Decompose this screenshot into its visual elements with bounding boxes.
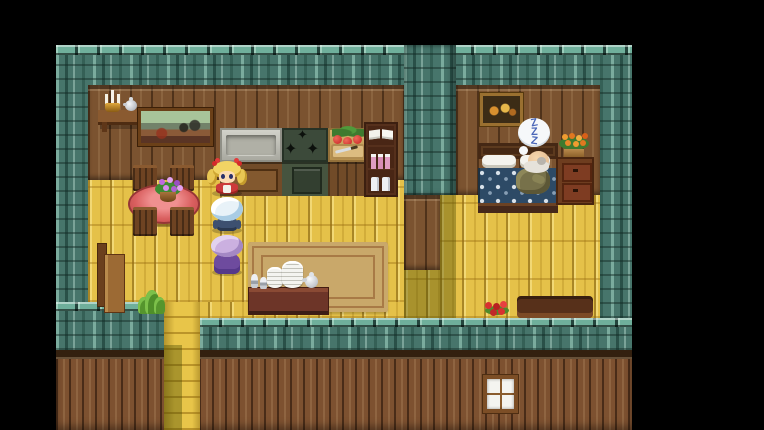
goblet <box>251 274 258 288</box>
orange-flowers <box>562 134 568 140</box>
shelf-bracket <box>102 122 107 132</box>
bubble-body: Z Z Z <box>518 118 550 147</box>
teapot-body <box>125 100 137 111</box>
hair-ornament <box>212 161 217 166</box>
doorstep <box>517 296 593 318</box>
prep-counter[interactable] <box>328 128 368 196</box>
partition-shadow-east <box>440 195 456 318</box>
blue-hair <box>211 197 243 221</box>
radish <box>333 135 342 144</box>
table-teapot <box>303 272 320 288</box>
shelf-cell-top <box>368 126 394 145</box>
drawer-handle <box>573 189 578 192</box>
sleep-bubble: Z Z Z <box>516 118 552 156</box>
window <box>483 375 518 413</box>
pillow <box>482 155 516 168</box>
dining-chair[interactable] <box>133 207 157 236</box>
plate-stack <box>282 261 303 288</box>
bench-seat <box>104 254 125 313</box>
exit-stairs-shadow <box>164 345 182 430</box>
character-heroine[interactable] <box>208 158 246 196</box>
shelf-cell-mid <box>368 147 394 168</box>
dresser[interactable] <box>556 157 594 205</box>
partition-shadow-south <box>404 270 440 318</box>
house-plant <box>138 288 165 315</box>
purple-flowers <box>159 179 165 185</box>
potion-bottle <box>378 154 383 169</box>
plant-tuft <box>154 297 165 314</box>
plate-stack <box>267 267 283 288</box>
heroine-eye <box>221 174 225 179</box>
candelabra-base <box>105 103 120 112</box>
radish <box>353 135 362 144</box>
red-flowers <box>483 300 511 317</box>
old-man-nose <box>537 157 546 165</box>
partition-wall <box>404 195 440 270</box>
dish-table[interactable] <box>248 287 329 315</box>
candelabra <box>103 90 122 112</box>
blue-arm <box>236 220 241 229</box>
oven <box>282 162 328 196</box>
heroine-eye <box>229 174 233 179</box>
sink-basin <box>226 135 276 156</box>
red-blooms <box>485 302 492 309</box>
south-roof-right-cap <box>200 318 632 327</box>
purple-hair <box>211 235 243 257</box>
bench <box>95 243 123 313</box>
character-blue-hair[interactable] <box>208 197 246 234</box>
milk-jar <box>371 177 379 191</box>
hair-ornament <box>237 161 242 166</box>
open-book <box>369 129 380 140</box>
footboard <box>478 203 558 213</box>
prep-cabinet <box>328 162 368 196</box>
potion-bottle <box>371 154 376 169</box>
burner-icon: ✦ <box>306 139 319 159</box>
candle <box>111 90 114 104</box>
burner-icon: ✦ <box>284 139 297 159</box>
bookshelf[interactable] <box>364 122 398 197</box>
exterior-wall <box>56 350 632 430</box>
bubble-tail <box>519 146 528 155</box>
flower-basket <box>153 175 183 203</box>
blue-arm <box>213 220 218 229</box>
z-letter: Z <box>530 137 538 147</box>
teapot-spout <box>123 103 127 106</box>
open-book <box>382 129 393 140</box>
game-viewport[interactable]: ✦ ✦ ✦ <box>56 45 632 430</box>
shelf-cell-bottom <box>368 170 394 193</box>
goblet <box>260 277 267 289</box>
dresser-drawer <box>562 183 592 202</box>
character-purple-hair[interactable] <box>208 235 246 276</box>
drawer-handle <box>573 169 578 172</box>
roof-ridge-top <box>56 45 632 55</box>
oven-door <box>292 167 322 194</box>
heroine-apron <box>223 185 231 193</box>
potion-bottle <box>385 154 390 169</box>
dresser-drawer <box>562 163 592 182</box>
landscape-painting <box>138 108 213 146</box>
milk-jar <box>382 177 390 191</box>
partition-roof <box>404 45 456 195</box>
basket <box>160 192 176 202</box>
stove[interactable]: ✦ ✦ ✦ <box>282 128 328 196</box>
game-screen: ✦ ✦ ✦ <box>0 0 764 430</box>
exterior-wall-trim <box>56 350 632 359</box>
teapot-lid <box>129 97 133 101</box>
dining-chair[interactable] <box>170 207 194 236</box>
teapot-lid <box>309 272 314 277</box>
